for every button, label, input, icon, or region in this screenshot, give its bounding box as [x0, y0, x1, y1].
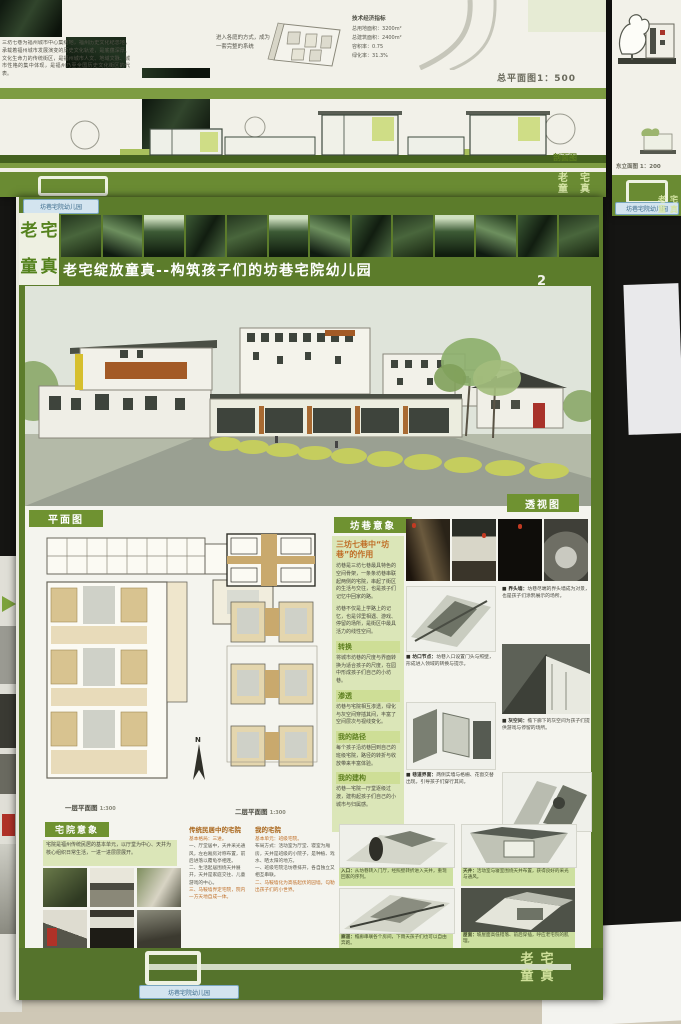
tradition-column: 传统民居中的宅院 基本格局：三进。 一、厅堂居中，天井采光通风，左右厢房对称布置… [189, 824, 249, 948]
indicators-title: 技术经济指标 [352, 14, 442, 22]
sidebar-subtitle: 三坊七巷中“坊巷”的作用 [336, 540, 400, 560]
fangxiang-label: 坊巷意象 [334, 517, 412, 533]
film-frame [186, 215, 226, 257]
sidebar-paragraph: 将城市坊巷的尺度与界面转换为适合孩子的尺度，在园中形成孩子们自己的小坊巷。 [336, 655, 400, 686]
logo-frame [145, 951, 201, 985]
detail-caption: 入口：从坊巷转入门厅，经照壁转折进入天井，重现回家的序列。 [339, 868, 453, 886]
plan-caption-1: 一层平面图 1:300 [65, 802, 116, 812]
detail-card: 天井：活动室与寝室围绕天井布置，获得良好的采光与通风。 [461, 824, 575, 884]
column-title: 传统民居中的宅院 [189, 824, 249, 834]
diagram-note: ■ 坊口节点：坊巷入口设置门头与照壁，形成进入领域的转换与提示。 [406, 654, 494, 698]
film-frame [227, 215, 267, 257]
sidebar-paragraph: 每个孩子沿坊巷回到自己的班级宅院，路径的转折与收放带来丰富体验。 [336, 745, 400, 768]
fangxiang-sidebar: 三坊七巷中“坊巷”的作用 坊巷是三坊七巷最具特色的空间骨架，一条条坊巷串联起两侧… [332, 536, 404, 832]
logo-frame [38, 176, 108, 196]
alley-photo [544, 519, 588, 581]
top-poster-footer: 老宅 童真 [0, 172, 606, 197]
alley-photo [498, 519, 542, 581]
main-poster: 坊巷宅院幼儿园 老宅 童真 老宅绽放童真--构筑孩子们的坊巷宅院幼儿园 2 [16, 197, 603, 1000]
poster-title: 老宅绽放童真--构筑孩子们的坊巷宅院幼儿园 [63, 260, 583, 280]
film-frame [393, 215, 433, 257]
elevation-label: 东立面图 1：200 [616, 162, 661, 170]
main-footer: 坊巷宅院幼儿园 老宅 童真 [19, 948, 603, 1000]
detail-caption: 屋面：坡屋面高低错落、前后穿插，呼应老宅院的肌理。 [461, 932, 575, 948]
column-text: 基本单元：班级宅院。 布局方式：活动室为厅堂、寝室为厢房，天井是班级的小院子，是… [255, 836, 335, 894]
footer-stripe [147, 964, 571, 970]
concept-diagram [502, 644, 590, 714]
concept-mosaic: ■ 坊口节点：坊巷入口设置门头与照壁，形成进入领域的转换与提示。 ■ 巷道界面：… [406, 586, 590, 832]
north-label: N [195, 736, 201, 744]
detail-card: 廊道：檐廊串联各个房间，下雨天孩子们也可以自由奔跑。 [339, 888, 453, 948]
sidebar-subheading: 转换 [336, 641, 400, 653]
indicator-row: 绿化率：31.3% [352, 52, 442, 61]
sidebar-paragraph: 坊巷与宅院相互渗透，绿化与灰空间穿插其间，丰富了空间层次与视线变化。 [336, 704, 400, 727]
courtyard-photo [43, 910, 87, 949]
content-panel: 透视图 平面图 [25, 286, 591, 948]
film-frame [518, 215, 558, 257]
green-divider [0, 88, 606, 99]
courtyard-photo [90, 868, 134, 907]
my-courtyard-column: 我的宅院 基本单元：班级宅院。 布局方式：活动室为厅堂、寝室为厢房，天井是班级的… [255, 824, 335, 948]
alley-photo [452, 519, 496, 581]
film-frame [559, 215, 599, 257]
floor-plan-drawing [31, 530, 329, 792]
sidebar-subheading: 我的路径 [336, 731, 400, 743]
film-frame [61, 215, 101, 257]
indicators-block: 技术经济指标 总用地面积：3200m² 总建筑面积：2400m² 容积率：0.7… [352, 14, 442, 72]
sidebar-paragraph: 坊巷不仅是上学路上的记忆，也是邻里相遇、游戏、停留的场所，是街区中最具活力的线性… [336, 606, 400, 637]
brand-logo: 老宅 童真 [517, 951, 557, 985]
courtyard-photo-grid [43, 868, 183, 949]
sliver-red-patch [2, 814, 15, 836]
sliver-arrow-icon [2, 596, 16, 612]
film-strip [61, 215, 599, 257]
courtyard-photo [90, 910, 134, 949]
brand-logo: 老宅 童真 [552, 173, 596, 196]
sidebar-subheading: 渗透 [336, 690, 400, 702]
poster-logo: 老宅 童真 [19, 213, 59, 285]
concept-diagram [406, 586, 496, 652]
neighbor-poster: 东立面图 1：200 坊巷宅院幼儿园 老宅 童真 [612, 0, 681, 216]
column-text: 基本格局：三进。 一、厅堂居中，天井采光通风，左右厢房对称布置，前后进落以覆龟亭… [189, 836, 249, 902]
neighbor-footer: 坊巷宅院幼儿园 老宅 童真 [612, 175, 681, 216]
section-label: 剖面图 [553, 152, 577, 163]
zhaiyuan-intro: 宅院是福州传统民居的基本单元，以厅堂为中心、天井为核心组织日常生活，一进一进层层… [43, 840, 177, 866]
courtyard-photo [137, 910, 181, 949]
diagram-note: ■ 灰空间：檐下廊下的灰空间为孩子们提供游戏与停留的场所。 [502, 718, 590, 768]
plan-caption-2: 二层平面图 1:300 [235, 806, 286, 816]
sidebar-paragraph: 坊巷—宅院—厅堂逐级过渡，建构起孩子们自己的小城市与归属感。 [336, 786, 400, 809]
registration-tag: 坊巷宅院幼儿园 [139, 985, 239, 999]
concept-diagram [406, 702, 496, 770]
diagram-note: ■ 界头墙：坊巷尽端的界头墙成为对景，也是孩子们涂鸦展示的场所。 [502, 586, 590, 640]
alley-photo-row [406, 519, 590, 581]
film-frame [103, 215, 143, 257]
site-plan-label: 总平面图1：500 [497, 71, 576, 84]
zhaiyuan-label: 宅院意象 [45, 822, 109, 837]
axon-diagram [266, 16, 344, 70]
film-frame [476, 215, 516, 257]
registration-tag: 坊巷宅院幼儿园 [23, 199, 99, 214]
alley-photo [406, 519, 450, 581]
courtyard-photo [137, 868, 181, 907]
site-green-patch [528, 0, 606, 32]
film-frame [435, 215, 475, 257]
film-frame [144, 215, 184, 257]
brand-logo: 老宅 童真 [656, 195, 680, 215]
sidebar-subheading: 我的建构 [336, 772, 400, 784]
elevation-sketch [616, 8, 678, 68]
perspective-label: 透视图 [507, 494, 579, 512]
intro-photo-3 [142, 68, 210, 78]
section-drawing [0, 99, 606, 172]
concept-diagram [502, 772, 592, 832]
indicator-row: 总用地面积：3200m² [352, 25, 442, 34]
column-title: 我的宅院 [255, 824, 335, 834]
sidebar-paragraph: 坊巷是三坊七巷最具特色的空间骨架，一条条坊巷串联起两侧的宅院，串起了街区的生活与… [336, 563, 400, 602]
courtyard-photo [43, 868, 87, 907]
photo-backdrop: 三坊七巷为福州城市中心集结地，福州历史文化纪念地，承载着福州城市发展演变的历史文… [0, 0, 681, 1024]
perspective-rendering [25, 286, 591, 506]
indicator-row: 总建筑面积：2400m² [352, 34, 442, 43]
detail-caption: 天井：活动室与寝室围绕天井布置，获得良好的采光与通风。 [461, 868, 575, 886]
detail-card: 屋面：坡屋面高低错落、前后穿插，呼应老宅院的肌理。 [461, 888, 575, 948]
film-frame [310, 215, 350, 257]
plans-label: 平面图 [29, 510, 103, 527]
intro-photo-1 [0, 0, 62, 37]
paper-sheet [623, 283, 681, 435]
elevation-sketch-2 [638, 126, 678, 158]
detail-card-grid: 入口：从坊巷转入门厅，经照壁转折进入天井，重现回家的序列。 天井：活动室与寝室围… [339, 824, 575, 948]
detail-card: 入口：从坊巷转入门厅，经照壁转折进入天井，重现回家的序列。 [339, 824, 453, 884]
north-arrow-icon [193, 744, 205, 780]
intro-text: 三坊七巷为福州城市中心集结地，福州历史文化纪念地，承载着福州城市发展演变的历史文… [2, 40, 130, 86]
axon-caption: 进入各庭的方式，成为一套完整的系统 [216, 34, 270, 56]
top-poster: 三坊七巷为福州城市中心集结地，福州历史文化纪念地，承载着福州城市发展演变的历史文… [0, 0, 606, 197]
film-frame [352, 215, 392, 257]
indicator-row: 容积率：0.75 [352, 43, 442, 52]
film-frame [269, 215, 309, 257]
diagram-note: ■ 巷道界面：两侧实墙与格栅、花窗交替出现，引导孩子们穿行其间。 [406, 772, 494, 830]
